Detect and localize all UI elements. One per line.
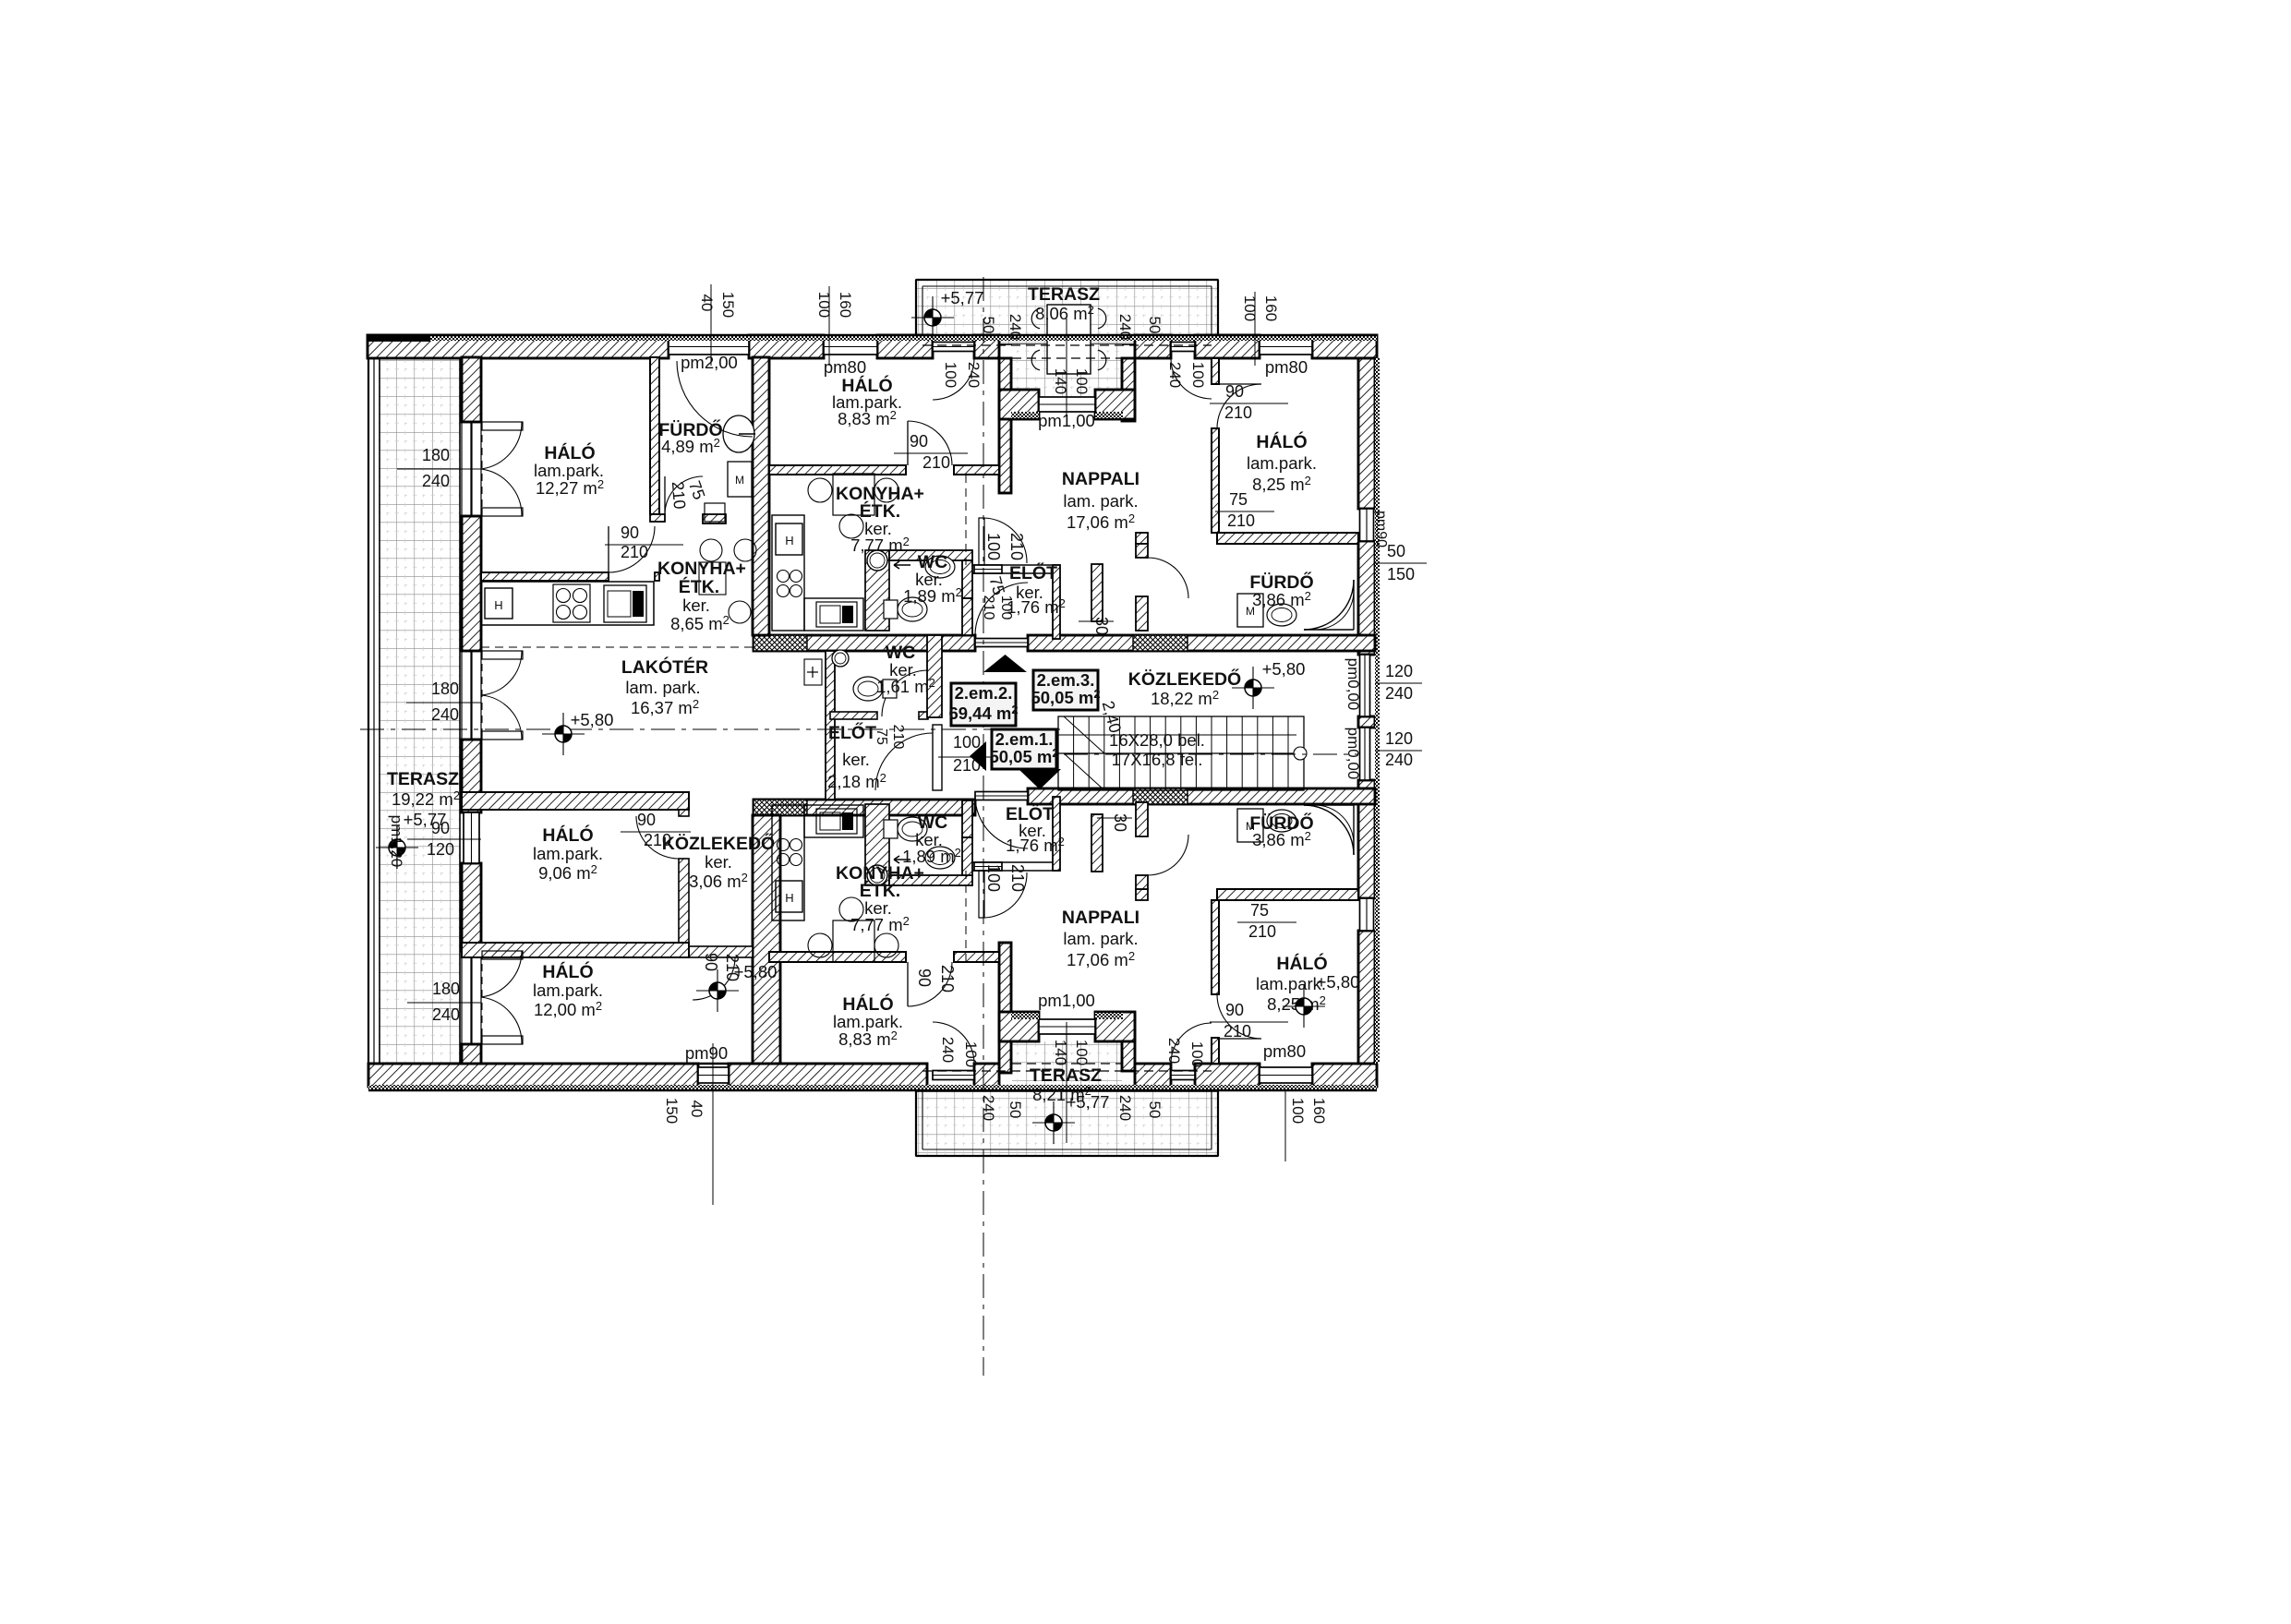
- svg-text:50: 50: [1007, 1101, 1024, 1119]
- svg-text:240: 240: [422, 472, 450, 490]
- svg-text:17,06 m2: 17,06 m2: [1067, 949, 1135, 969]
- svg-text:pm1,20: pm1,20: [388, 815, 405, 868]
- svg-text:210: 210: [1008, 864, 1027, 892]
- svg-text:90: 90: [621, 523, 639, 542]
- svg-text:240: 240: [980, 1095, 997, 1121]
- svg-text:69,44 m2: 69,44 m2: [948, 703, 1018, 723]
- svg-text:50: 50: [1146, 1101, 1164, 1119]
- svg-text:180: 180: [422, 446, 450, 464]
- svg-text:1,76 m2: 1,76 m2: [1007, 596, 1066, 617]
- svg-text:240: 240: [1385, 684, 1413, 703]
- svg-text:240: 240: [1007, 314, 1024, 340]
- svg-text:30: 30: [1092, 617, 1111, 635]
- svg-text:pm80: pm80: [1263, 1041, 1306, 1061]
- svg-text:ker.: ker.: [842, 750, 870, 769]
- svg-text:50: 50: [1387, 542, 1405, 560]
- svg-text:90: 90: [1225, 382, 1244, 401]
- svg-text:HÁLÓ: HÁLÓ: [542, 824, 593, 846]
- svg-text:18,22 m2: 18,22 m2: [1151, 688, 1219, 708]
- svg-text:75: 75: [874, 728, 889, 745]
- svg-text:160: 160: [837, 292, 854, 318]
- svg-text:2.em.3.: 2.em.3.: [1037, 670, 1095, 690]
- svg-text:8,25 m2: 8,25 m2: [1252, 474, 1311, 494]
- svg-text:210: 210: [1007, 533, 1026, 560]
- svg-text:12,00 m2: 12,00 m2: [534, 999, 602, 1019]
- svg-text:ker.: ker.: [705, 852, 732, 872]
- svg-text:8,06 m2: 8,06 m2: [1035, 303, 1094, 323]
- svg-text:100: 100: [1289, 1098, 1307, 1124]
- svg-text:50: 50: [980, 317, 997, 334]
- svg-text:lam. park.: lam. park.: [1063, 491, 1138, 511]
- svg-text:210: 210: [1224, 403, 1252, 422]
- svg-text:210: 210: [621, 543, 648, 561]
- svg-text:pm1,00: pm1,00: [1038, 991, 1095, 1010]
- svg-text:4,89 m2: 4,89 m2: [661, 436, 720, 456]
- svg-text:pm90: pm90: [685, 1043, 728, 1063]
- svg-text:TERASZ: TERASZ: [1030, 1065, 1102, 1086]
- svg-text:TERASZ: TERASZ: [387, 769, 459, 789]
- svg-text:150: 150: [1387, 565, 1415, 583]
- svg-text:lam.park.: lam.park.: [533, 980, 603, 1000]
- svg-text:90: 90: [910, 432, 928, 451]
- svg-text:240: 240: [431, 705, 459, 724]
- svg-text:H: H: [785, 534, 793, 547]
- svg-text:100: 100: [815, 292, 833, 318]
- svg-text:ELŐT: ELŐT: [828, 722, 876, 743]
- svg-text:lam.park.: lam.park.: [534, 461, 604, 480]
- svg-text:3,06 m2: 3,06 m2: [689, 871, 748, 891]
- svg-text:2.em.2.: 2.em.2.: [955, 683, 1013, 703]
- svg-text:19,22 m2: 19,22 m2: [392, 788, 460, 809]
- svg-text:160: 160: [1310, 1098, 1328, 1124]
- svg-text:lam. park.: lam. park.: [625, 678, 700, 697]
- svg-text:120: 120: [427, 840, 454, 859]
- svg-text:100: 100: [1073, 1040, 1091, 1065]
- svg-text:150: 150: [719, 292, 737, 318]
- svg-text:90: 90: [637, 811, 656, 829]
- svg-text:ÉTK.: ÉTK.: [679, 576, 719, 597]
- svg-text:7,77 m2: 7,77 m2: [850, 914, 910, 934]
- svg-text:NAPPALI: NAPPALI: [1062, 469, 1139, 489]
- svg-text:240: 240: [965, 362, 983, 388]
- svg-text:210: 210: [938, 965, 957, 992]
- svg-text:75: 75: [1250, 901, 1269, 920]
- svg-text:17,06 m2: 17,06 m2: [1067, 511, 1135, 532]
- svg-text:ELŐT: ELŐT: [1009, 562, 1057, 583]
- svg-text:50,05 m2: 50,05 m2: [989, 746, 1058, 766]
- svg-text:+5,77: +5,77: [941, 288, 984, 307]
- svg-text:90: 90: [431, 819, 450, 837]
- svg-text:100: 100: [1073, 368, 1091, 394]
- svg-text:+5,80: +5,80: [571, 710, 614, 729]
- svg-text:210: 210: [669, 481, 690, 511]
- svg-text:210: 210: [922, 453, 950, 472]
- svg-text:210: 210: [644, 831, 671, 849]
- svg-text:240: 240: [1116, 1095, 1134, 1121]
- svg-text:17X16,8 fel.: 17X16,8 fel.: [1112, 750, 1203, 769]
- svg-text:100: 100: [1189, 362, 1207, 388]
- svg-text:KONYHA+: KONYHA+: [657, 559, 746, 579]
- svg-text:pm2,00: pm2,00: [681, 353, 738, 372]
- svg-text:8,65 m2: 8,65 m2: [670, 613, 730, 633]
- svg-text:M: M: [735, 474, 744, 487]
- svg-text:180: 180: [432, 980, 460, 998]
- svg-text:100: 100: [984, 864, 1003, 892]
- svg-text:pm80: pm80: [1265, 357, 1308, 377]
- svg-text:120: 120: [1385, 662, 1413, 680]
- svg-text:180: 180: [431, 680, 459, 698]
- svg-text:pm0,00: pm0,00: [1344, 658, 1362, 711]
- svg-text:30: 30: [1111, 813, 1129, 832]
- svg-text:210: 210: [890, 725, 906, 750]
- svg-text:7,77 m2: 7,77 m2: [850, 535, 910, 555]
- svg-text:H: H: [494, 598, 502, 612]
- svg-text:1,61 m2: 1,61 m2: [876, 676, 935, 696]
- svg-text:16,37 m2: 16,37 m2: [631, 697, 699, 717]
- svg-text:HÁLÓ: HÁLÓ: [1256, 430, 1307, 452]
- svg-text:pm80: pm80: [824, 357, 866, 377]
- svg-text:1,76 m2: 1,76 m2: [1006, 835, 1065, 855]
- svg-text:9,06 m2: 9,06 m2: [538, 862, 597, 883]
- svg-text:+5,80: +5,80: [1262, 659, 1306, 679]
- svg-text:150: 150: [663, 1098, 681, 1124]
- svg-text:210: 210: [723, 954, 742, 981]
- svg-text:100: 100: [953, 733, 981, 752]
- svg-text:100: 100: [962, 1041, 980, 1067]
- svg-text:HÁLÓ: HÁLÓ: [542, 960, 593, 982]
- svg-text:240: 240: [432, 1005, 460, 1024]
- svg-text:90: 90: [702, 953, 720, 971]
- svg-text:12,27 m2: 12,27 m2: [536, 477, 604, 498]
- svg-text:8,83 m2: 8,83 m2: [838, 408, 897, 428]
- svg-text:40: 40: [688, 1101, 705, 1118]
- svg-text:240: 240: [1116, 314, 1134, 340]
- svg-text:lam.park.: lam.park.: [1247, 453, 1317, 473]
- svg-text:100: 100: [998, 595, 1014, 620]
- svg-text:100: 100: [984, 533, 1003, 560]
- svg-text:pm0,00: pm0,00: [1344, 728, 1362, 780]
- svg-text:50,05 m2: 50,05 m2: [1031, 687, 1100, 707]
- svg-text:2,18 m2: 2,18 m2: [827, 771, 886, 791]
- svg-text:lam.park.: lam.park.: [533, 844, 603, 863]
- svg-text:2.em.1.: 2.em.1.: [995, 729, 1054, 749]
- svg-text:240: 240: [1166, 362, 1184, 388]
- svg-text:+5,80: +5,80: [1317, 972, 1360, 992]
- svg-text:120: 120: [1385, 729, 1413, 748]
- svg-text:TERASZ: TERASZ: [1028, 284, 1100, 305]
- svg-text:KÖZLEKEDŐ: KÖZLEKEDŐ: [1128, 668, 1241, 690]
- svg-text:1,89 m2: 1,89 m2: [903, 585, 962, 606]
- svg-text:NAPPALI: NAPPALI: [1062, 908, 1139, 928]
- svg-text:ker.: ker.: [682, 595, 710, 615]
- svg-text:40: 40: [698, 295, 716, 312]
- svg-text:90: 90: [1225, 1001, 1244, 1019]
- svg-text:90: 90: [915, 968, 934, 987]
- svg-text:3,86 m2: 3,86 m2: [1252, 589, 1311, 609]
- svg-text:100: 100: [1188, 1041, 1206, 1067]
- svg-text:100: 100: [942, 362, 959, 388]
- svg-text:240: 240: [1165, 1038, 1183, 1064]
- svg-text:210: 210: [1248, 922, 1276, 941]
- svg-text:75: 75: [1229, 490, 1248, 509]
- svg-text:H: H: [785, 891, 793, 905]
- svg-text:210: 210: [981, 595, 996, 620]
- svg-text:210: 210: [1224, 1022, 1251, 1041]
- svg-text:LAKÓTÉR: LAKÓTÉR: [621, 656, 708, 678]
- svg-text:+5,77: +5,77: [1067, 1092, 1110, 1112]
- svg-text:240: 240: [1385, 751, 1413, 769]
- svg-text:8,83 m2: 8,83 m2: [838, 1029, 898, 1049]
- svg-text:100: 100: [1241, 295, 1259, 321]
- svg-text:lam. park.: lam. park.: [1063, 929, 1138, 948]
- svg-text:50: 50: [1146, 317, 1164, 334]
- svg-text:240: 240: [939, 1037, 957, 1063]
- svg-text:210: 210: [1227, 511, 1255, 530]
- svg-text:HÁLÓ: HÁLÓ: [1276, 952, 1327, 974]
- svg-text:3,86 m2: 3,86 m2: [1252, 829, 1311, 849]
- svg-text:KÖZLEKEDŐ: KÖZLEKEDŐ: [662, 833, 775, 854]
- svg-text:160: 160: [1262, 295, 1280, 321]
- svg-text:16X28,0 bel.: 16X28,0 bel.: [1109, 730, 1205, 750]
